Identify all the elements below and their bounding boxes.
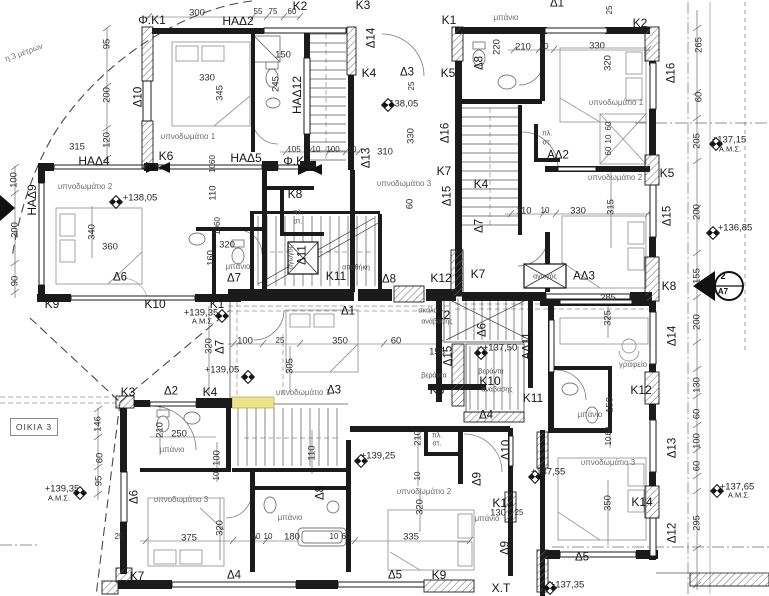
dimension-label: 320 bbox=[215, 520, 225, 536]
dimension-label: 150 bbox=[605, 397, 615, 413]
dimension-label: 95 bbox=[102, 39, 112, 50]
dimension-label: 10 bbox=[414, 472, 422, 481]
wall-label: Κ12 bbox=[630, 384, 651, 396]
opening-label: Δ13 bbox=[361, 148, 373, 168]
wall-label: Κ8 bbox=[662, 280, 677, 292]
dimension-label: 265 bbox=[694, 37, 704, 53]
dimension-label: 60 bbox=[252, 533, 261, 541]
dimension-label: 330 bbox=[570, 206, 586, 216]
dimension-label: 10 bbox=[312, 146, 321, 154]
opening-label: Δ11 bbox=[297, 245, 309, 265]
wall-label: Κ10 bbox=[479, 375, 500, 387]
wall-label: Κ4 bbox=[474, 178, 489, 190]
opening-label: Δ16 bbox=[440, 123, 452, 143]
opening-label: Δ3 bbox=[327, 385, 341, 397]
dimension-label: 330 bbox=[406, 128, 416, 144]
room-label: μπάνιο bbox=[160, 446, 185, 454]
room-label: μπάνιο bbox=[278, 514, 303, 522]
level-label: +136,85 bbox=[718, 223, 753, 233]
opening-label: Δ6 bbox=[113, 272, 127, 284]
dimension-label: 60 bbox=[692, 461, 702, 472]
dimension-label: 220 bbox=[492, 39, 502, 55]
dimension-label: 375 bbox=[181, 533, 197, 543]
wall-label: Κ5 bbox=[441, 67, 456, 79]
dimension-label: 150 bbox=[275, 50, 291, 60]
room-label: υπνοδωμάτιο 3 bbox=[581, 459, 635, 467]
floorplan-canvas: 2 Α7 ΟΙΚΙΑ 3 η 3 μέτρωνΦ.Κ1300ΗΑΔ2557560… bbox=[0, 0, 769, 596]
dimension-label: 146 bbox=[93, 416, 103, 432]
level-label: Α.Μ.Σ. bbox=[48, 494, 70, 502]
level-label: +137,50 bbox=[483, 343, 518, 353]
dimension-label: 295 bbox=[692, 515, 702, 531]
dimension-label: 330 bbox=[589, 41, 605, 51]
wall-label: Κ2 bbox=[293, 0, 308, 12]
opening-label: Δ7 bbox=[474, 219, 486, 233]
dimension-label: 200 bbox=[102, 87, 112, 103]
room-label: υπνοδωμάτιο 1 bbox=[161, 133, 215, 141]
opening-label: Δ10 bbox=[133, 87, 145, 107]
dimension-label: 120 bbox=[102, 132, 112, 148]
dimension-label: 335 bbox=[403, 532, 419, 542]
opening-label: Δ14 bbox=[366, 28, 378, 48]
window-label: ΗΑΔ12 bbox=[291, 76, 303, 114]
wall-label: Κ4 bbox=[362, 67, 377, 79]
dimension-label: 100 bbox=[326, 146, 339, 154]
wall-label: Χ.Τ bbox=[492, 582, 511, 594]
wall-label: Κ14 bbox=[631, 496, 652, 508]
dimension-label: 10 bbox=[264, 533, 273, 541]
opening-label: Δ16 bbox=[666, 63, 678, 83]
dimension-label: 10 bbox=[330, 533, 339, 541]
wall-label: Κ7 bbox=[471, 268, 486, 280]
room-label: υπνοδωμάτιο 2 bbox=[397, 488, 451, 496]
opening-label: Δ1 bbox=[341, 306, 355, 318]
dimension-label: 100 bbox=[692, 433, 702, 449]
dimension-label: 25 bbox=[606, 6, 614, 15]
level-label: +139,05 bbox=[205, 365, 240, 375]
small-label: σκάλα bbox=[418, 308, 437, 315]
wall-label: Κ7 bbox=[130, 570, 145, 582]
small-label: βεράντα bbox=[421, 373, 446, 380]
opening-label: Δ5 bbox=[388, 570, 402, 582]
small-label: ανάβασης bbox=[481, 387, 512, 394]
dimension-label: 345 bbox=[215, 85, 225, 101]
opening-label: Δ15 bbox=[442, 186, 454, 206]
small-label: στ. bbox=[542, 140, 551, 147]
small-label: στ. bbox=[432, 441, 441, 448]
dimension-label: 160 bbox=[206, 250, 216, 266]
room-label: υπνοδωμάτιο 2 bbox=[588, 174, 642, 182]
dimension-label: 10 bbox=[605, 135, 613, 144]
opening-label: Δ12 bbox=[667, 523, 679, 543]
dimension-label: 130 bbox=[692, 377, 702, 393]
dimension-label: 100 bbox=[9, 172, 19, 188]
dimension-label: 315 bbox=[69, 142, 85, 152]
opening-label: Δ15 bbox=[662, 206, 674, 226]
wall-label: Κ4 bbox=[203, 386, 218, 398]
wall-label: Φ.Κ1 bbox=[138, 14, 166, 26]
room-label: μπάνιο bbox=[226, 263, 251, 271]
opening-label: ΑΔ2 bbox=[547, 150, 569, 162]
level-label: Α.Μ.Σ. bbox=[719, 145, 741, 153]
dimension-label: 245 bbox=[271, 76, 281, 92]
dimension-label: 25 bbox=[276, 337, 285, 345]
wall-label: Κ9 bbox=[432, 569, 447, 581]
dimension-label: 25 bbox=[408, 82, 416, 91]
dimension-label: 10 bbox=[541, 207, 550, 215]
opening-label: ΑΔ11 bbox=[522, 332, 534, 359]
dimension-label: 25 bbox=[515, 509, 524, 517]
small-label: αποθήκη bbox=[342, 265, 370, 272]
opening-label: Δ13 bbox=[667, 438, 679, 458]
dimension-label: 25 bbox=[115, 533, 124, 541]
dimension-label: 340 bbox=[87, 224, 97, 240]
dimension-label: 60 bbox=[694, 92, 704, 103]
wall-label: Κ11 bbox=[523, 392, 543, 404]
opening-label: Δ14 bbox=[667, 326, 679, 346]
dimension-label: 100 bbox=[237, 336, 253, 346]
dimension-label: 10 bbox=[213, 472, 221, 481]
opening-label: Δ15 bbox=[443, 346, 455, 366]
dimension-label: 130 bbox=[490, 508, 506, 518]
wall-label: Κ2 bbox=[633, 17, 648, 29]
dimension-label: 350 bbox=[332, 336, 348, 346]
dimension-label: 300 bbox=[189, 8, 205, 18]
room-label: γραφείο bbox=[619, 361, 647, 369]
dimension-label: 205 bbox=[692, 133, 702, 149]
wall-label: Κ6 bbox=[159, 150, 174, 162]
window-label: ΗΑΔ2 bbox=[222, 15, 253, 27]
dimension-label: 320 bbox=[204, 338, 214, 354]
dimension-label: 315 bbox=[606, 199, 616, 215]
dimension-label: 75 bbox=[269, 8, 278, 16]
dimension-label: 110 bbox=[307, 445, 317, 460]
small-label: πλ. bbox=[432, 433, 442, 440]
small-label: αγωγός bbox=[533, 274, 557, 281]
opening-label: Δ7 bbox=[227, 273, 241, 285]
dimension-label: 210 bbox=[413, 430, 423, 446]
dimension-label: 320 bbox=[603, 55, 613, 71]
dimension-label: 325 bbox=[603, 310, 613, 326]
dimension-label: 285 bbox=[600, 293, 616, 303]
room-label: υπνοδωμάτιο 3 bbox=[154, 496, 208, 504]
boundary-note: η 3 μέτρων bbox=[4, 42, 44, 63]
room-label: υπνοδωμάτιο 1 bbox=[589, 99, 643, 107]
dimension-label: 200 bbox=[10, 222, 20, 238]
level-label: +138,05 bbox=[123, 193, 158, 203]
opening-label: Δ8 bbox=[474, 56, 486, 70]
dimension-label: 350 bbox=[603, 495, 613, 511]
dimension-label: 100 bbox=[212, 450, 222, 466]
wall-label: Κ8 bbox=[288, 188, 303, 200]
dimension-label: 90 bbox=[10, 276, 20, 287]
window-label: ΗΑΔ9 bbox=[26, 184, 38, 215]
dimension-label: 320 bbox=[415, 499, 425, 515]
opening-label: Δ5 bbox=[575, 552, 589, 564]
window-label: ΗΑΔ4 bbox=[78, 155, 109, 167]
room-label: υπνοδωμάτιο 2 bbox=[58, 183, 112, 191]
dimension-label: 320 bbox=[219, 240, 235, 250]
dimension-label: 10 bbox=[348, 146, 357, 154]
dimension-label: 10 bbox=[605, 437, 613, 446]
dimension-label: 95 bbox=[94, 476, 104, 487]
room-label: υπνοδωμάτιο 3 bbox=[377, 180, 431, 188]
opening-label: Δ4 bbox=[479, 410, 493, 422]
opening-label: Δ9 bbox=[472, 472, 484, 486]
wall-label: Φ.Κ2 bbox=[283, 155, 311, 167]
opening-label: Δ1 bbox=[550, 0, 564, 10]
wall-label: Κ1 bbox=[442, 14, 457, 26]
window-label: ΗΑΔ5 bbox=[230, 152, 261, 164]
dimension-label: 360 bbox=[102, 242, 118, 252]
small-label: στ. bbox=[293, 219, 302, 226]
dimension-label: 60 bbox=[692, 409, 702, 420]
dimension-label: 60 bbox=[605, 122, 613, 131]
small-label: ανάβασης bbox=[421, 319, 452, 326]
dimension-label: 110 bbox=[516, 206, 531, 216]
wall-label: Κ11 bbox=[326, 270, 346, 282]
annotations-layer: η 3 μέτρωνΦ.Κ1300ΗΑΔ2557560Κ2Κ3Κ1μπάνιοΔ… bbox=[0, 0, 769, 596]
dimension-label: 60 bbox=[342, 533, 351, 541]
dimension-label: 1060 bbox=[214, 217, 222, 235]
dimension-label: 60 bbox=[391, 336, 402, 346]
opening-label: Δ4 bbox=[227, 570, 241, 582]
dimension-label: 1060 bbox=[209, 155, 217, 173]
wall-label: Κ10 bbox=[144, 298, 165, 310]
dimension-label: 60 bbox=[605, 427, 613, 436]
dimension-label: 305 bbox=[285, 358, 295, 374]
wall-label: Κ9 bbox=[45, 298, 60, 310]
dimension-label: 200 bbox=[692, 314, 702, 330]
opening-label: Δ7 bbox=[215, 340, 227, 354]
level-marker-icon bbox=[241, 370, 255, 384]
dimension-label: 10 bbox=[540, 43, 549, 51]
dimension-label: 60 bbox=[405, 199, 415, 210]
opening-label: Δ10 bbox=[501, 440, 513, 460]
room-label: μπάνιο bbox=[578, 411, 603, 419]
small-label: αγωγός bbox=[288, 245, 295, 269]
dimension-label: 210 bbox=[515, 42, 531, 52]
dimension-label: 200 bbox=[692, 204, 702, 220]
wall-label: Κ3 bbox=[356, 0, 371, 11]
dimension-label: 55 bbox=[254, 8, 263, 16]
wall-label: Κ12 bbox=[430, 272, 451, 284]
room-label: μπάνιο bbox=[494, 14, 519, 22]
opening-label: Δ3 bbox=[400, 67, 414, 79]
dimension-label: 105 bbox=[287, 146, 300, 154]
dimension-label: 110 bbox=[208, 185, 218, 200]
small-label: πλ. bbox=[293, 210, 303, 217]
dimension-label: 60 bbox=[605, 147, 613, 156]
dimension-label: 210 bbox=[155, 422, 165, 438]
dimension-label: 310 bbox=[377, 147, 393, 157]
level-label: Α.Μ.Σ. bbox=[728, 491, 750, 499]
wall-label: Κ7 bbox=[437, 165, 452, 177]
room-label: υπνοδωμάτιο 1 bbox=[276, 389, 330, 397]
opening-label: Δ2 bbox=[164, 386, 178, 398]
opening-label: Δ9 bbox=[500, 541, 512, 555]
dimension-label: 155 bbox=[692, 268, 702, 284]
opening-label: Δ8 bbox=[382, 274, 396, 286]
wall-label: Κ6 bbox=[430, 384, 445, 396]
opening-label: Δ6 bbox=[477, 323, 489, 337]
dimension-label: 60 bbox=[95, 453, 105, 464]
level-marker-icon bbox=[109, 195, 123, 209]
level-label: Α.Μ.Σ. bbox=[192, 317, 214, 325]
small-label: πλ. bbox=[542, 131, 552, 138]
dimension-label: 330 bbox=[199, 73, 215, 83]
opening-label: ΑΔ3 bbox=[573, 271, 595, 283]
wall-label: Κ3 bbox=[121, 386, 136, 398]
wall-label: Κ5 bbox=[660, 167, 675, 179]
dimension-label: 250 bbox=[171, 429, 187, 439]
opening-label: Δ6 bbox=[129, 490, 141, 504]
opening-label: Δ8 bbox=[315, 486, 327, 500]
dimension-label: 180 bbox=[284, 532, 300, 542]
